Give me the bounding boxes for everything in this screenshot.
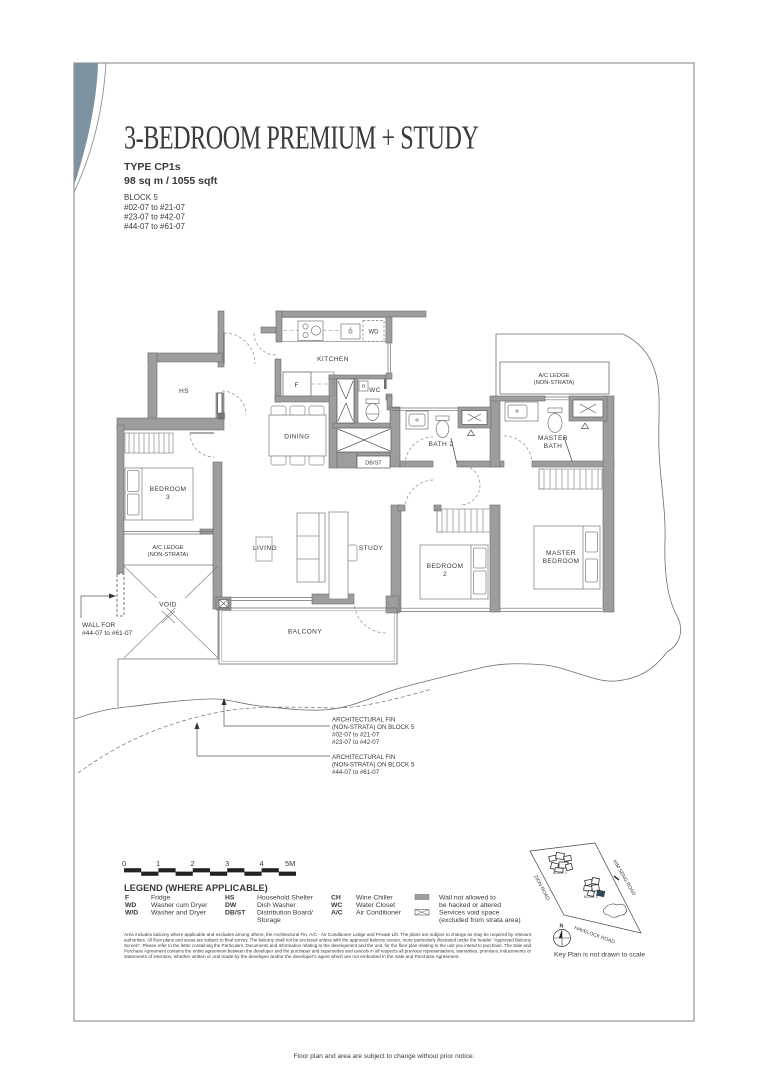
svg-text:CH: CH [331,895,341,902]
svg-text:statements of intention, wheth: statements of intention, whether written… [124,954,460,959]
svg-text:BEDROOM: BEDROOM [427,563,464,570]
svg-text:BLOCK 5: BLOCK 5 [584,895,598,899]
svg-text:#44-07 to #61-07: #44-07 to #61-07 [332,769,380,776]
svg-text:be hacked or altered: be hacked or altered [439,902,501,909]
svg-text:Wine Chiller: Wine Chiller [356,895,393,902]
svg-text:#23-07 to #42-07: #23-07 to #42-07 [332,739,380,746]
svg-text:A/C: A/C [331,910,343,917]
svg-text:(NON-STRATA): (NON-STRATA) [534,380,575,386]
svg-text:2: 2 [191,859,195,868]
svg-text:LEGEND (WHERE APPLICABLE): LEGEND (WHERE APPLICABLE) [124,883,268,893]
svg-text:DB/ST: DB/ST [225,910,246,917]
svg-text:W/D: W/D [125,910,138,917]
svg-text:MASTER: MASTER [538,435,568,442]
svg-text:3: 3 [225,859,229,868]
svg-text:BEDROOM: BEDROOM [543,558,580,565]
svg-text:F: F [125,895,129,902]
svg-text:#44-07 to #61-07: #44-07 to #61-07 [82,630,133,637]
svg-text:TYPE CP1s: TYPE CP1s [124,161,181,173]
svg-text:Air Conditioner: Air Conditioner [356,910,402,917]
svg-text:WALL FOR: WALL FOR [82,622,115,629]
svg-text:BLOCK 3: BLOCK 3 [553,871,567,875]
svg-text:ARCHITECTURAL FIN: ARCHITECTURAL FIN [332,717,395,724]
svg-text:(NON-STRATA) ON BLOCK 5: (NON-STRATA) ON BLOCK 5 [332,724,415,731]
svg-text:WC: WC [369,387,381,394]
svg-text:98 sq m / 1055 sqft: 98 sq m / 1055 sqft [124,175,218,187]
svg-text:Distribution Board/: Distribution Board/ [257,910,313,917]
svg-text:4: 4 [260,859,264,868]
svg-text:Water Closet: Water Closet [356,902,395,909]
svg-text:STUDY: STUDY [359,545,384,552]
svg-text:1: 1 [156,859,160,868]
svg-text:Screen". Please refer to the l: Screen". Please refer to the letter cont… [124,943,531,948]
svg-text:HS: HS [179,388,189,395]
svg-text:BATH: BATH [544,443,563,450]
svg-text:Storage: Storage [257,917,281,924]
svg-text:VOID: VOID [159,602,177,609]
svg-text:Washer cum Dryer: Washer cum Dryer [151,902,208,909]
svg-text:A/C LEDGE: A/C LEDGE [153,545,184,551]
svg-text:BALCONY: BALCONY [288,629,323,636]
svg-text:KITCHEN: KITCHEN [317,356,349,363]
svg-text:Floor plan and area are subjec: Floor plan and area are subject to chang… [293,1053,474,1060]
svg-text:DINING: DINING [284,434,309,441]
svg-text:Washer and Dryer: Washer and Dryer [151,910,207,917]
svg-text:Wall not allowed to: Wall not allowed to [439,895,496,902]
svg-text:3-BEDROOM PREMIUM + STUDY: 3-BEDROOM PREMIUM + STUDY [124,120,479,157]
svg-text:2: 2 [443,571,447,578]
svg-text:(NON-STRATA) ON BLOCK 5: (NON-STRATA) ON BLOCK 5 [332,762,415,769]
svg-text:MASTER: MASTER [546,550,576,557]
svg-text:F: F [295,382,299,389]
svg-text:DB/ST: DB/ST [365,461,382,467]
svg-text:WD: WD [369,330,380,336]
svg-text:DW: DW [225,902,237,909]
svg-text:#23-07 to #42-07: #23-07 to #42-07 [124,213,185,222]
svg-text:(excluded from strata area): (excluded from strata area) [439,917,521,924]
svg-text:Purchase Agreement contains th: Purchase Agreement contains the entire a… [124,949,531,954]
svg-text:Fridge: Fridge [151,895,170,902]
svg-text:#02-07 to #21-07: #02-07 to #21-07 [124,203,185,212]
svg-text:Services void space: Services void space [439,910,500,917]
svg-text:Key Plan is not drawn to scale: Key Plan is not drawn to scale [554,952,645,959]
svg-text:3: 3 [166,494,170,501]
svg-text:0: 0 [122,859,126,868]
svg-text:A/C LEDGE: A/C LEDGE [539,373,570,379]
svg-text:BATH 2: BATH 2 [429,441,454,448]
svg-text:5M: 5M [285,859,295,868]
svg-text:WD: WD [125,902,136,909]
svg-text:BEDROOM: BEDROOM [150,486,187,493]
svg-text:(NON-STRATA): (NON-STRATA) [148,552,189,558]
svg-text:ARCHITECTURAL FIN: ARCHITECTURAL FIN [332,754,395,761]
svg-text:Dish Washer: Dish Washer [257,902,296,909]
svg-text:WC: WC [331,902,342,909]
svg-text:#44-07 to #61-07: #44-07 to #61-07 [124,222,185,231]
svg-text:N: N [560,924,564,930]
svg-text:Area includes balcony where ap: Area includes balcony where applicable a… [124,932,532,937]
svg-text:LIVING: LIVING [253,545,277,552]
svg-text:Household Shelter: Household Shelter [257,895,314,902]
svg-text:authorities. All floor plans a: authorities. All floor plans and areas a… [124,938,532,943]
svg-text:HS: HS [225,895,235,902]
svg-text:BLOCK 5: BLOCK 5 [124,193,158,202]
svg-text:#02-07 to #21-07: #02-07 to #21-07 [332,732,380,739]
